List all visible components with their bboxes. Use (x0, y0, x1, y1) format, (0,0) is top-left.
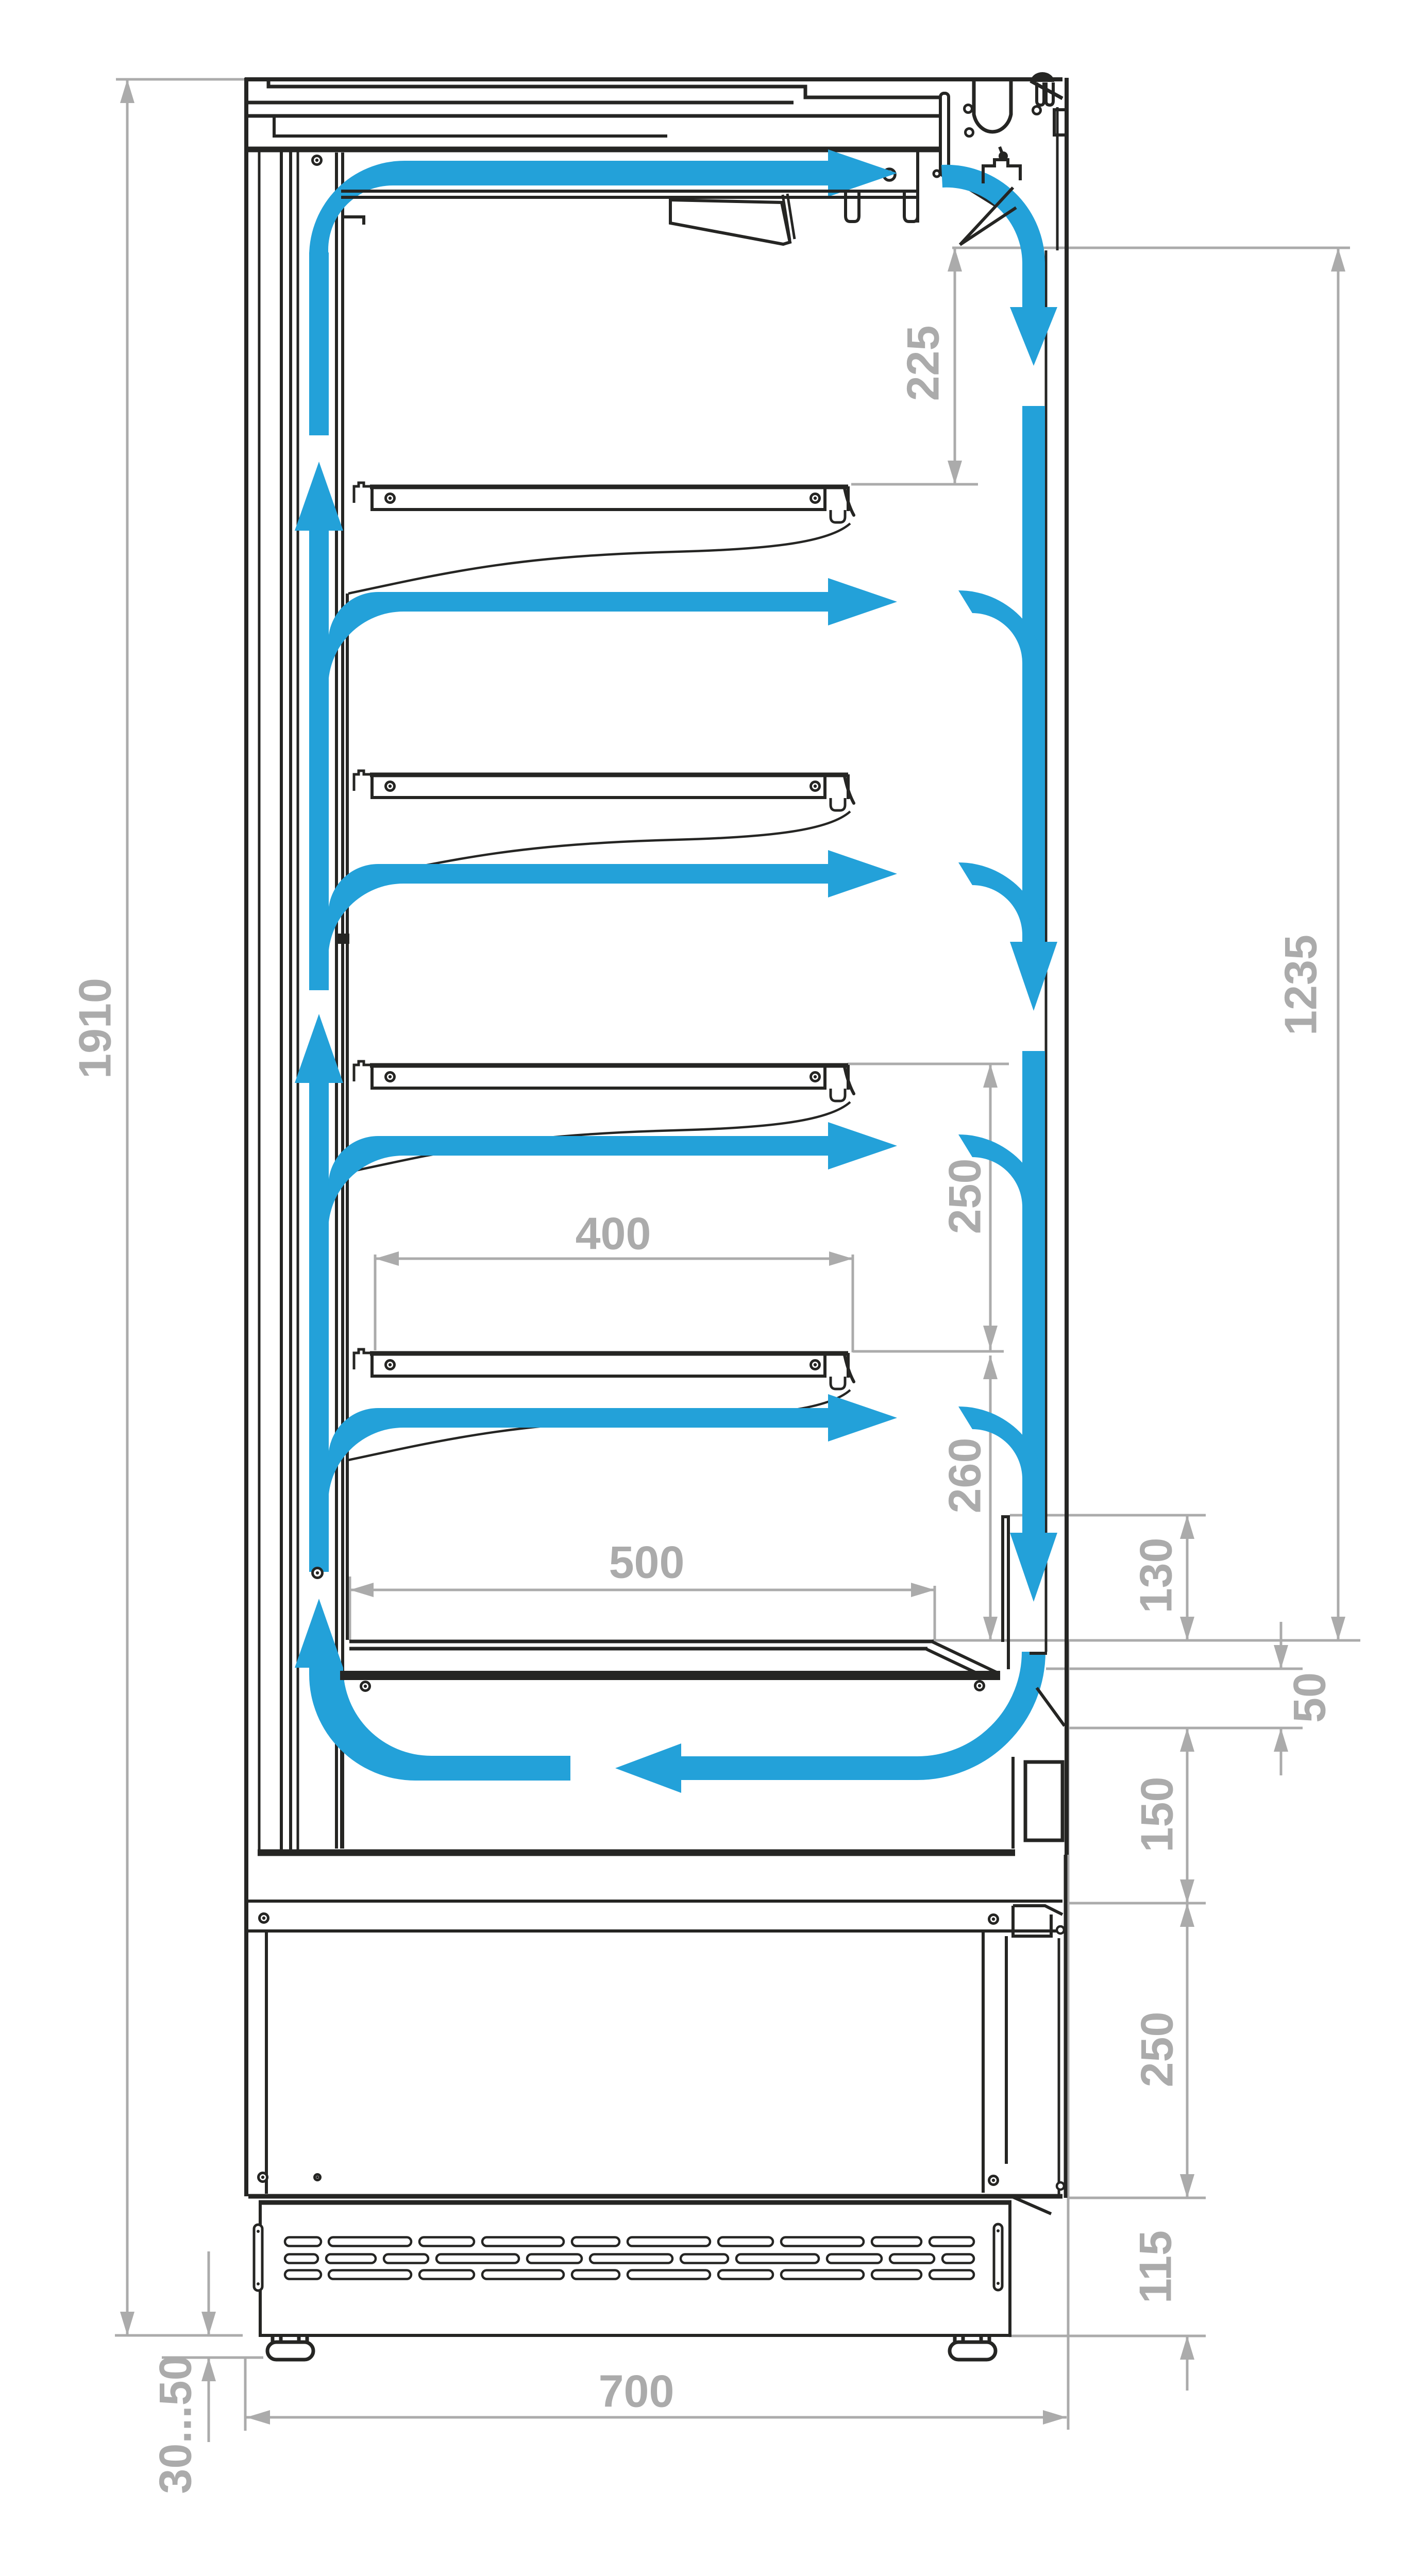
svg-text:250: 250 (1132, 2012, 1183, 2088)
svg-text:150: 150 (1132, 1777, 1183, 1853)
svg-text:1235: 1235 (1275, 935, 1326, 1036)
svg-text:260: 260 (939, 1438, 990, 1514)
svg-text:500: 500 (609, 1537, 685, 1588)
svg-text:115: 115 (1130, 2230, 1181, 2303)
svg-text:700: 700 (599, 2366, 674, 2417)
svg-text:50: 50 (1284, 1672, 1335, 1723)
svg-text:400: 400 (576, 1208, 651, 1259)
svg-text:30...50: 30...50 (150, 2355, 201, 2494)
svg-text:250: 250 (939, 1159, 990, 1234)
svg-text:130: 130 (1131, 1538, 1182, 1614)
svg-text:225: 225 (898, 326, 949, 401)
svg-text:1910: 1910 (70, 978, 121, 1079)
